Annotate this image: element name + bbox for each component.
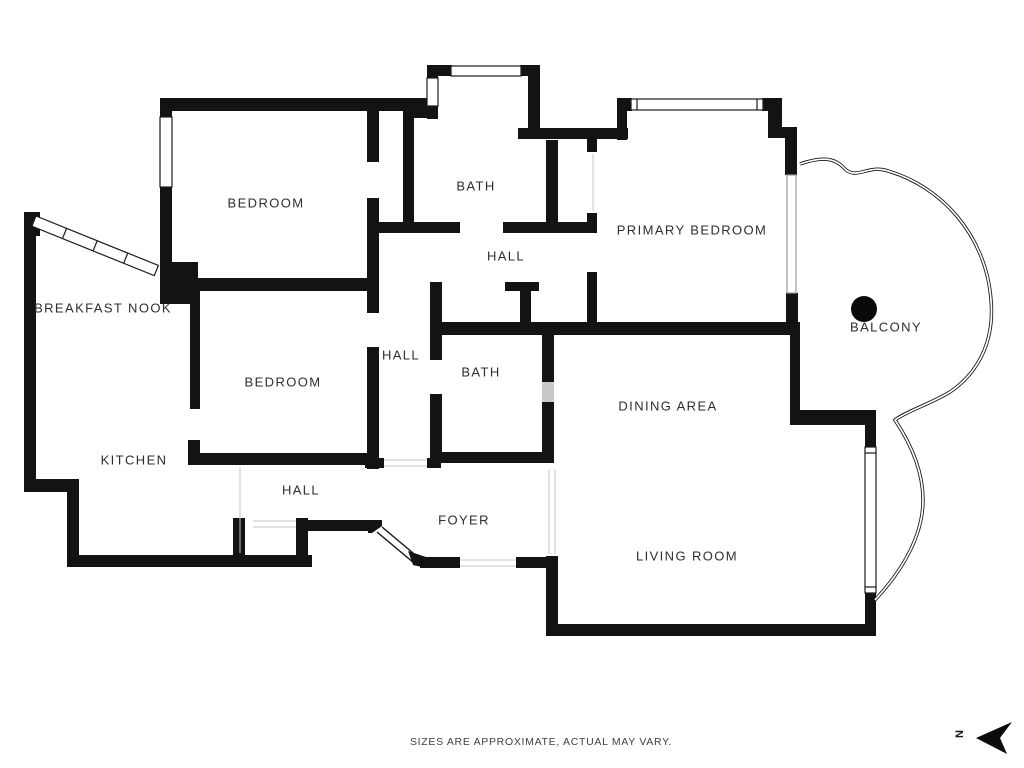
- room-label-bedroom-1: BEDROOM: [228, 196, 305, 211]
- entry-door-swing: [382, 527, 419, 558]
- floor-plan-drawing: [0, 0, 1024, 768]
- room-label-hall-lower: HALL: [282, 483, 320, 498]
- balcony-dot: [851, 296, 877, 322]
- north-label: N: [954, 730, 966, 738]
- north-arrow-icon: [970, 716, 1016, 756]
- north-arrow: N: [948, 712, 1018, 758]
- room-label-bedroom-2: BEDROOM: [245, 375, 322, 390]
- door-bath2: [542, 382, 554, 402]
- window-primary-bedroom: [631, 99, 763, 110]
- window-bedroom1: [160, 117, 172, 187]
- window-breakfast-nook-diagonal: [32, 216, 159, 276]
- room-label-foyer: FOYER: [438, 513, 490, 528]
- room-label-primary-bedroom: PRIMARY BEDROOM: [617, 223, 768, 238]
- room-label-bath-1: BATH: [456, 179, 495, 194]
- floor-plan: BEDROOM BATH HALL PRIMARY BEDROOM BREAKF…: [0, 0, 1024, 768]
- balcony-outline: [800, 159, 992, 600]
- room-label-kitchen: KITCHEN: [101, 453, 168, 468]
- window-living-room: [865, 447, 876, 593]
- balcony-sliding-door: [787, 175, 796, 293]
- room-label-dining-area: DINING AREA: [618, 399, 717, 414]
- room-label-hall-center: HALL: [382, 348, 420, 363]
- room-label-living-room: LIVING ROOM: [636, 549, 738, 564]
- window-bath-top: [451, 66, 521, 76]
- room-label-hall-upper: HALL: [487, 249, 525, 264]
- window-bath-side: [427, 78, 438, 106]
- doors-layer: [377, 382, 554, 563]
- room-label-bath-2: BATH: [461, 365, 500, 380]
- room-label-balcony: BALCONY: [850, 320, 922, 335]
- walls-layer: [24, 65, 876, 636]
- disclaimer-text: SIZES ARE APPROXIMATE, ACTUAL MAY VARY.: [410, 736, 672, 748]
- room-label-breakfast-nook: BREAKFAST NOOK: [34, 301, 172, 316]
